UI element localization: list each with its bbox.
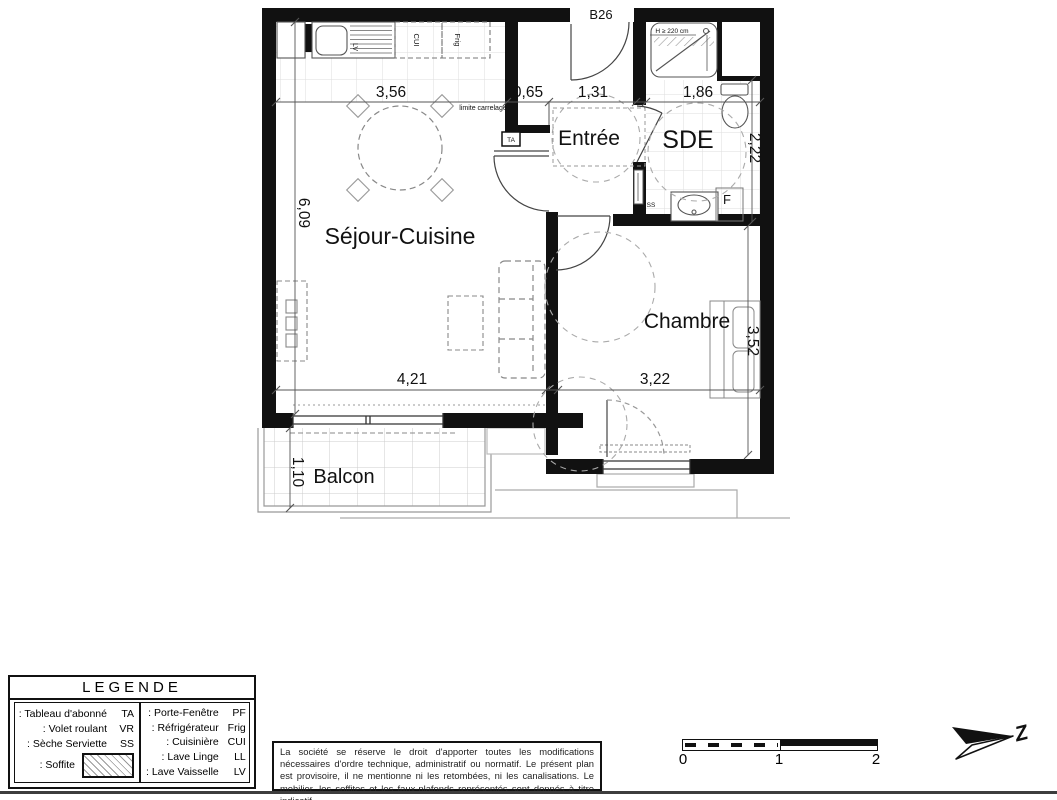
north-arrow-icon: Z [952, 721, 1032, 759]
tv-unit [277, 281, 307, 361]
scale-bar-dashes [685, 743, 778, 747]
pillow [733, 351, 754, 392]
room-label-sde: SDE [662, 126, 713, 154]
dim-balcon-depth: 1,10 [289, 457, 306, 488]
legend-item-vr: : Volet roulant VR [20, 723, 134, 735]
scale-bar-graphic [682, 739, 878, 751]
ta-label: TA [507, 137, 515, 144]
scale-bar-left-half [683, 740, 781, 750]
volet-roulant-chambre [600, 445, 690, 452]
washbasin [671, 192, 718, 221]
dim-closet-width: 0,65 [513, 84, 543, 101]
limite-carrelage-label: limite carrelage [459, 105, 507, 112]
legend-item-pf: : Porte-Fenêtre PF [146, 707, 246, 719]
f-label: F [723, 192, 731, 207]
shower-height-label: H ≥ 220 cm [655, 28, 688, 35]
legend-item-soffite: : Soffite [20, 753, 134, 778]
sejour-door-leaf [494, 151, 549, 156]
room-label-chambre: Chambre [644, 310, 730, 333]
dim-kitchen-width: 3,56 [376, 84, 406, 101]
scale-bar-solid [781, 740, 877, 746]
legend-body: : Tableau d'abonné TA : Volet roulant VR… [14, 702, 250, 783]
dim-chambre-height: 3,52 [744, 326, 761, 356]
sofa [499, 261, 545, 378]
towel-radiator [634, 170, 643, 204]
dim-sde-width: 1,86 [683, 84, 713, 101]
disclaimer-box: La société se réserve le droit d'apporte… [272, 741, 602, 791]
scale-tick-2: 2 [872, 751, 880, 768]
scale-tick-1: 1 [775, 751, 783, 768]
legend-box: LEGENDE : Tableau d'abonné TA : Volet ro… [8, 675, 256, 789]
page-bottom-rule [0, 791, 1057, 794]
legend-right-column: : Porte-Fenêtre PF : Réfrigérateur Frig … [141, 703, 251, 782]
scale-bar: 0 1 2 [682, 739, 878, 771]
north-letter: Z [1011, 721, 1031, 747]
dim-sejour-height: 6,09 [295, 198, 312, 228]
legend-item-cui: : Cuisinière CUI [146, 736, 246, 748]
toilet [721, 84, 748, 128]
window-sejour [293, 413, 443, 428]
scale-bar-right-half [781, 740, 877, 750]
legend-item-ll: : Lave Linge LL [146, 751, 246, 763]
legend-item-lv: : Lave Vaisselle LV [146, 766, 246, 778]
room-label-sejour: Séjour-Cuisine [325, 223, 476, 249]
legend-item-ss: : Sèche Serviette SS [20, 738, 134, 750]
ss-label: SS [647, 202, 656, 209]
tableau-abonne-box: TA [502, 132, 520, 146]
cui-label: CUI [412, 34, 421, 47]
soffite-hatch-swatch [82, 753, 134, 778]
dim-sde-height: 2,22 [746, 133, 763, 163]
room-label-entree: Entrée [558, 127, 620, 150]
dining-chairs [347, 95, 454, 202]
scale-tick-0: 0 [679, 751, 687, 768]
legend-left-column: : Tableau d'abonné TA : Volet roulant VR… [15, 703, 141, 782]
room-label-balcon: Balcon [313, 466, 374, 488]
sejour-door-swing [494, 156, 549, 211]
dining-table [347, 95, 454, 202]
coffee-table [448, 296, 483, 350]
unit-label: B26 [589, 7, 612, 22]
legend-item-ta: : Tableau d'abonné TA [20, 708, 134, 720]
lv-label: LV [351, 43, 358, 51]
chambre-window-door-swing [607, 400, 664, 457]
floor-plan-page: TA LV CUI Frig [0, 0, 1057, 800]
dim-chambre-width: 3,22 [640, 371, 670, 388]
legend-item-frig: : Réfrigérateur Frig [146, 722, 246, 734]
window-chambre [603, 459, 690, 474]
dim-sejour-width: 4,21 [397, 371, 427, 388]
dim-entree-width: 1,31 [578, 84, 608, 101]
entrance-door-swing [571, 22, 629, 80]
frig-label: Frig [453, 34, 462, 47]
chambre-door-swing [556, 216, 610, 270]
legend-title: LEGENDE [10, 677, 254, 700]
